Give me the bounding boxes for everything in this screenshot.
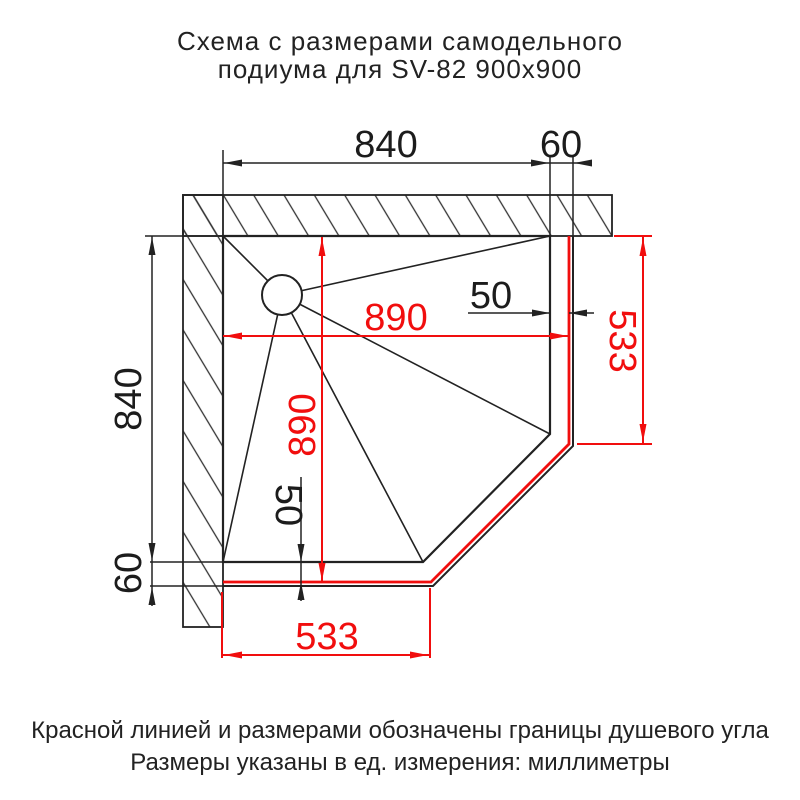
wall-top-hatched <box>183 195 612 236</box>
footnote-red-line: Красной линией и размерами обозначены гр… <box>0 717 800 745</box>
dim-label-red-890v: 890 <box>282 393 324 456</box>
drain-circle <box>262 275 302 315</box>
dim-label-red-533-right: 533 <box>601 309 643 372</box>
dim-label-red-533-bottom: 533 <box>295 616 358 658</box>
podium-diagram-page: Схема с размерами самодельного подиума д… <box>0 0 800 800</box>
dim-label-top-840: 840 <box>354 124 417 166</box>
dim-label-red-890h: 890 <box>364 297 427 339</box>
dim-label-left-840: 840 <box>108 367 150 430</box>
dim-label-left-60: 60 <box>108 552 150 594</box>
dim-label-gap-right-50: 50 <box>470 275 512 317</box>
podium-drawing: 840 60 840 60 50 50 890 890 <box>0 0 800 800</box>
dim-label-gap-bottom-50: 50 <box>267 484 309 526</box>
footnote-units: Размеры указаны в ед. измерения: миллиме… <box>0 749 800 777</box>
dim-label-top-60: 60 <box>540 124 582 166</box>
dim-red-533-bottom: 533 <box>222 588 430 659</box>
dim-red-533-right: 533 <box>577 236 652 444</box>
